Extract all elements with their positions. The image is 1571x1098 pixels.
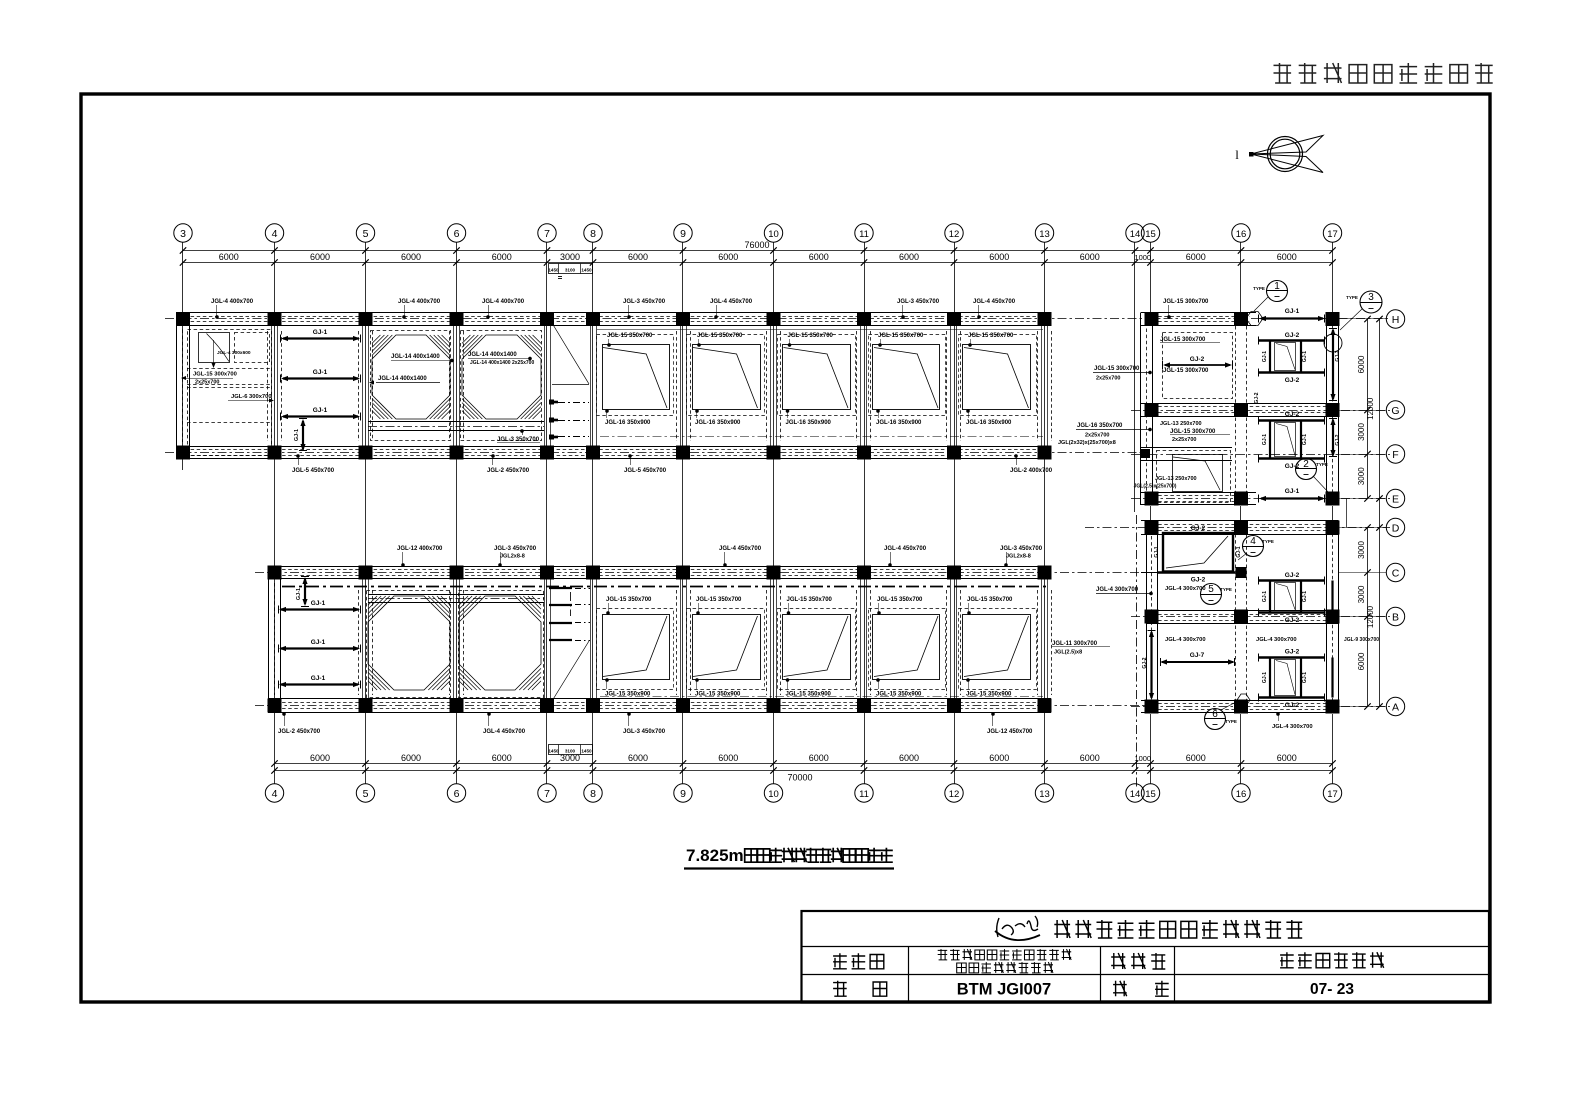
svg-text:JGL2x8-8: JGL2x8-8	[1006, 554, 1031, 560]
svg-text:2x25x700: 2x25x700	[1096, 376, 1120, 382]
svg-text:17: 17	[1327, 789, 1338, 800]
svg-text:JGL-4 300x700: JGL-4 300x700	[1272, 724, 1313, 730]
svg-text:F: F	[1392, 449, 1398, 461]
svg-text:6000: 6000	[899, 753, 919, 763]
svg-text:3000: 3000	[1357, 541, 1366, 559]
svg-text:70000: 70000	[787, 773, 812, 783]
svg-text:JGL-16 350x900: JGL-16 350x900	[786, 420, 832, 426]
svg-text:6000: 6000	[310, 753, 330, 763]
svg-text:JGL-4 300x700: JGL-4 300x700	[1165, 637, 1206, 643]
svg-text:GJ-1: GJ-1	[313, 369, 328, 376]
svg-text:6000: 6000	[1186, 753, 1206, 763]
svg-text:JGL-15 350x700: JGL-15 350x700	[878, 333, 924, 339]
svg-text:JGL-3 450x700: JGL-3 450x700	[494, 546, 537, 552]
svg-text:JGL-4 300x700: JGL-4 300x700	[1096, 587, 1139, 593]
svg-text:E: E	[1392, 493, 1399, 505]
svg-text:JGL-4 450x700: JGL-4 450x700	[884, 546, 927, 552]
svg-text:JGL-15 350x700: JGL-15 350x700	[788, 333, 834, 339]
svg-text:JGL(2.5)x8: JGL(2.5)x8	[1054, 650, 1082, 656]
svg-text:76000: 76000	[744, 240, 769, 250]
svg-text:6: 6	[1212, 709, 1218, 720]
svg-text:D: D	[1392, 522, 1400, 534]
svg-text:GJ-1: GJ-1	[1302, 351, 1308, 362]
svg-text:GJ-2: GJ-2	[1191, 525, 1206, 532]
svg-text:6000: 6000	[401, 252, 421, 262]
svg-text:GJ-1: GJ-1	[311, 600, 326, 607]
svg-text:2x25x700: 2x25x700	[1085, 433, 1109, 439]
svg-text:BTM JGI007: BTM JGI007	[957, 981, 1051, 999]
svg-text:JGL-14 400x1400: JGL-14 400x1400	[468, 352, 517, 358]
svg-text:JGL-15 300x700: JGL-15 300x700	[1094, 366, 1140, 372]
svg-text:JGL-13 250x700: JGL-13 250x700	[1160, 421, 1202, 427]
svg-text:3100: 3100	[565, 749, 576, 754]
svg-text:JGL-6 300x700: JGL-6 300x700	[231, 394, 272, 400]
svg-text:GJ-1: GJ-1	[1262, 672, 1268, 683]
svg-text:JGL-4 400x700: JGL-4 400x700	[211, 299, 254, 305]
svg-text:TYPE: TYPE	[1262, 539, 1274, 544]
svg-text:3100: 3100	[565, 268, 576, 273]
svg-text:GJ-2: GJ-2	[1285, 617, 1300, 624]
svg-text:5: 5	[363, 788, 369, 800]
svg-text:2x25x700: 2x25x700	[195, 380, 219, 386]
svg-text:1450: 1450	[548, 268, 559, 273]
svg-text:6000: 6000	[401, 753, 421, 763]
svg-text:TYPE: TYPE	[1225, 719, 1237, 724]
svg-text:GJ-2: GJ-2	[1285, 411, 1300, 418]
svg-text:6000: 6000	[628, 753, 648, 763]
svg-text:GJ-2: GJ-2	[1190, 356, 1205, 363]
svg-text:07- 23: 07- 23	[1310, 981, 1354, 998]
svg-text:H: H	[1392, 314, 1400, 326]
svg-text:JGL-15 350x700: JGL-15 350x700	[607, 333, 653, 339]
svg-text:1450: 1450	[581, 268, 592, 273]
svg-text:13: 13	[1039, 229, 1050, 240]
svg-text:TYPE: TYPE	[1346, 295, 1358, 300]
svg-text:GJ-2: GJ-2	[1142, 657, 1148, 668]
svg-text:9: 9	[680, 228, 686, 240]
svg-text:GJ-1: GJ-1	[1285, 308, 1300, 315]
svg-text:JGL-3 350x700: JGL-3 350x700	[497, 437, 540, 443]
svg-text:6000: 6000	[310, 252, 330, 262]
svg-text:JGL-5 450x700: JGL-5 450x700	[624, 468, 667, 474]
svg-text:JGL-15 350x900: JGL-15 350x900	[605, 692, 651, 698]
svg-text:6000: 6000	[1277, 753, 1297, 763]
svg-text:JGL-4 450x700: JGL-4 450x700	[973, 299, 1016, 305]
svg-text:GJ-1: GJ-1	[1262, 351, 1268, 362]
svg-text:6000: 6000	[628, 252, 648, 262]
svg-text:JGL-4 450x700: JGL-4 450x700	[719, 546, 762, 552]
svg-text:A: A	[1392, 701, 1399, 713]
svg-text:6000: 6000	[989, 252, 1009, 262]
svg-text:JGL-14 400x1400: JGL-14 400x1400	[391, 354, 440, 360]
svg-text:C: C	[1392, 567, 1400, 579]
svg-text:JGL-15 350x700: JGL-15 350x700	[787, 597, 833, 603]
svg-text:4: 4	[1250, 536, 1256, 547]
svg-text:GJ-1: GJ-1	[1262, 591, 1268, 602]
svg-text:5: 5	[1208, 584, 1214, 595]
svg-text:JGL-15 350x700: JGL-15 350x700	[696, 597, 742, 603]
svg-text:GJ-1: GJ-1	[1262, 434, 1268, 445]
svg-text:10: 10	[768, 789, 779, 800]
svg-text:JGL-16 350x900: JGL-16 350x900	[876, 420, 922, 426]
svg-text:JGL-3 450x700: JGL-3 450x700	[623, 729, 666, 735]
svg-text:6000: 6000	[1357, 355, 1366, 373]
svg-text:17: 17	[1327, 229, 1338, 240]
svg-text:GJ-1: GJ-1	[313, 407, 328, 414]
svg-text:TYPE: TYPE	[1220, 587, 1232, 592]
svg-text:5: 5	[363, 228, 369, 240]
svg-text:JGL-4 450x700: JGL-4 450x700	[710, 299, 753, 305]
svg-text:6000: 6000	[1186, 252, 1206, 262]
svg-text:3: 3	[1368, 292, 1374, 303]
svg-text:6000: 6000	[718, 252, 738, 262]
svg-text:3000: 3000	[1357, 423, 1366, 441]
svg-text:16: 16	[1236, 789, 1247, 800]
svg-text:GJ-2: GJ-2	[1285, 572, 1300, 579]
svg-text:GJ-1: GJ-1	[294, 429, 300, 441]
svg-text:9: 9	[680, 788, 686, 800]
svg-text:8: 8	[590, 788, 596, 800]
svg-text:JGL-4 300x700: JGL-4 300x700	[1256, 637, 1297, 643]
svg-text:GJ-1: GJ-1	[311, 675, 326, 682]
svg-text:7: 7	[544, 228, 550, 240]
svg-text:10: 10	[768, 229, 779, 240]
svg-text:GJ-2: GJ-2	[1191, 577, 1206, 584]
svg-text:1: 1	[1274, 281, 1280, 292]
svg-text:JGL-15 300x700: JGL-15 300x700	[1160, 337, 1206, 343]
svg-text:GJ-2: GJ-2	[1285, 702, 1300, 709]
svg-text:JGL-15 350x900: JGL-15 350x900	[786, 692, 832, 698]
svg-text:JGL-15 300x700: JGL-15 300x700	[1163, 299, 1209, 305]
svg-text:B: B	[1392, 611, 1399, 623]
svg-text:JGL-15 300x700: JGL-15 300x700	[1170, 429, 1216, 435]
svg-text:12000: 12000	[1366, 397, 1375, 420]
svg-text:1450: 1450	[548, 749, 559, 754]
svg-text:JGL-15 350x700: JGL-15 350x700	[968, 333, 1014, 339]
svg-text:GJ-2: GJ-2	[1254, 392, 1260, 403]
svg-text:JGL-2 450x700: JGL-2 450x700	[487, 468, 530, 474]
svg-text:TYPE: TYPE	[1316, 462, 1328, 467]
svg-text:3000: 3000	[560, 252, 580, 262]
svg-text:JGL-4 400x700: JGL-4 400x700	[482, 299, 525, 305]
svg-text:JGL-15 350x700: JGL-15 350x700	[877, 597, 923, 603]
svg-text:JGL-15 300x700: JGL-15 300x700	[1163, 368, 1209, 374]
svg-text:GJ-7: GJ-7	[1190, 652, 1205, 659]
svg-text:JGL-4 300x700: JGL-4 300x700	[1165, 586, 1206, 592]
svg-text:JGL-12 400x700: JGL-12 400x700	[397, 546, 443, 552]
svg-text:JGL-15 350x700: JGL-15 350x700	[606, 597, 652, 603]
svg-text:JGL(2.5)x(25x700): JGL(2.5)x(25x700)	[1134, 484, 1177, 490]
svg-text:JGL-15 300x700: JGL-15 300x700	[193, 372, 237, 378]
svg-text:8: 8	[590, 228, 596, 240]
svg-text:JGL-2 450x700: JGL-2 450x700	[278, 729, 321, 735]
svg-text:JGL-16 350x700: JGL-16 350x700	[1077, 423, 1123, 429]
svg-text:JGL-4 300x600: JGL-4 300x600	[217, 350, 251, 356]
svg-text:GJ-1: GJ-1	[311, 639, 326, 646]
svg-text:JGL-15 350x700: JGL-15 350x700	[697, 333, 743, 339]
svg-text:11: 11	[859, 789, 869, 800]
svg-text:JGL-14 400x1400: JGL-14 400x1400	[378, 376, 427, 382]
svg-text:JGL-5 450x700: JGL-5 450x700	[292, 468, 335, 474]
svg-text:GJ-1: GJ-1	[1285, 488, 1300, 495]
svg-text:JGL-3 450x700: JGL-3 450x700	[623, 299, 666, 305]
svg-text:GJ-1: GJ-1	[1302, 591, 1308, 602]
svg-text:2: 2	[1303, 459, 1309, 470]
svg-text:1450: 1450	[581, 749, 592, 754]
svg-text:GJ-1: GJ-1	[313, 329, 328, 336]
svg-text:JGL-16 350x900: JGL-16 350x900	[695, 420, 741, 426]
svg-text:7.825m: 7.825m	[686, 846, 744, 865]
svg-text:JGL-13 250x700: JGL-13 250x700	[1155, 476, 1197, 482]
svg-text:6000: 6000	[492, 753, 512, 763]
svg-text:16: 16	[1236, 229, 1247, 240]
svg-text:6000: 6000	[1080, 252, 1100, 262]
svg-text:6: 6	[454, 228, 460, 240]
svg-text:15: 15	[1145, 789, 1156, 800]
svg-text:4: 4	[272, 788, 278, 800]
svg-text:JGL-16 350x900: JGL-16 350x900	[966, 420, 1012, 426]
svg-text:4: 4	[272, 228, 278, 240]
svg-text:JGL-9 300x700: JGL-9 300x700	[1344, 637, 1379, 643]
svg-text:2x25x700: 2x25x700	[1172, 437, 1196, 443]
svg-text:11: 11	[859, 229, 869, 240]
svg-text:JGL-15 350x900: JGL-15 350x900	[876, 692, 922, 698]
svg-text:JGL-4 400x700: JGL-4 400x700	[398, 299, 441, 305]
svg-text:6000: 6000	[1080, 753, 1100, 763]
svg-text:GJ-2: GJ-2	[1285, 649, 1300, 656]
svg-text:GJ-1: GJ-1	[1302, 434, 1308, 445]
svg-text:12: 12	[949, 229, 960, 240]
svg-text:G: G	[1391, 405, 1399, 417]
svg-text:GJ-2: GJ-2	[1285, 377, 1300, 384]
svg-text:6000: 6000	[989, 753, 1009, 763]
svg-text:6000: 6000	[492, 252, 512, 262]
svg-text:6: 6	[454, 788, 460, 800]
svg-text:14: 14	[1130, 789, 1141, 800]
svg-text:JGL(2x32)x(25x700)x8: JGL(2x32)x(25x700)x8	[1058, 440, 1116, 446]
svg-text:JGL2x8-8: JGL2x8-8	[500, 554, 525, 560]
svg-text:JGL-15 350x700: JGL-15 350x700	[967, 597, 1013, 603]
svg-text:l: l	[1235, 147, 1239, 162]
svg-text:14: 14	[1130, 229, 1141, 240]
svg-text:GJ-2: GJ-2	[1285, 332, 1300, 339]
svg-text:JGL-16 350x900: JGL-16 350x900	[605, 420, 651, 426]
svg-text:13: 13	[1039, 789, 1050, 800]
svg-text:JGL-3 450x700: JGL-3 450x700	[1000, 546, 1043, 552]
svg-text:GJ-1: GJ-1	[1302, 672, 1308, 683]
svg-text:3: 3	[180, 228, 186, 240]
svg-text:12: 12	[949, 789, 960, 800]
svg-text:6000: 6000	[1277, 252, 1297, 262]
svg-text:6000: 6000	[1357, 652, 1366, 670]
svg-text:JGL-11 300x700: JGL-11 300x700	[1052, 641, 1098, 647]
svg-text:15: 15	[1145, 229, 1156, 240]
svg-text:JGL-3 450x700: JGL-3 450x700	[897, 299, 940, 305]
svg-text:JGL-14 400x1400 2x25x700: JGL-14 400x1400 2x25x700	[470, 360, 534, 366]
svg-text:6000: 6000	[899, 252, 919, 262]
svg-text:TYPE: TYPE	[1253, 286, 1265, 291]
svg-text:JGL-4 450x700: JGL-4 450x700	[483, 729, 526, 735]
svg-text:3000: 3000	[1357, 585, 1366, 603]
svg-text:3000: 3000	[1357, 467, 1366, 485]
svg-text:JGL-2 400x700: JGL-2 400x700	[1010, 468, 1053, 474]
svg-text:GJ-1: GJ-1	[1236, 546, 1242, 557]
svg-text:JGL-12 450x700: JGL-12 450x700	[987, 729, 1033, 735]
svg-text:JGL-15 350x900: JGL-15 350x900	[966, 692, 1012, 698]
svg-text:GJ-2: GJ-2	[1335, 434, 1341, 445]
svg-text:GJ-1: GJ-1	[1154, 546, 1160, 557]
svg-text:GJ-1: GJ-1	[296, 588, 302, 600]
svg-text:6000: 6000	[809, 252, 829, 262]
svg-text:JGL-15 350x900: JGL-15 350x900	[695, 692, 741, 698]
svg-text:7: 7	[544, 788, 550, 800]
svg-text:6000: 6000	[718, 753, 738, 763]
svg-text:6000: 6000	[809, 753, 829, 763]
svg-text:6000: 6000	[219, 252, 239, 262]
